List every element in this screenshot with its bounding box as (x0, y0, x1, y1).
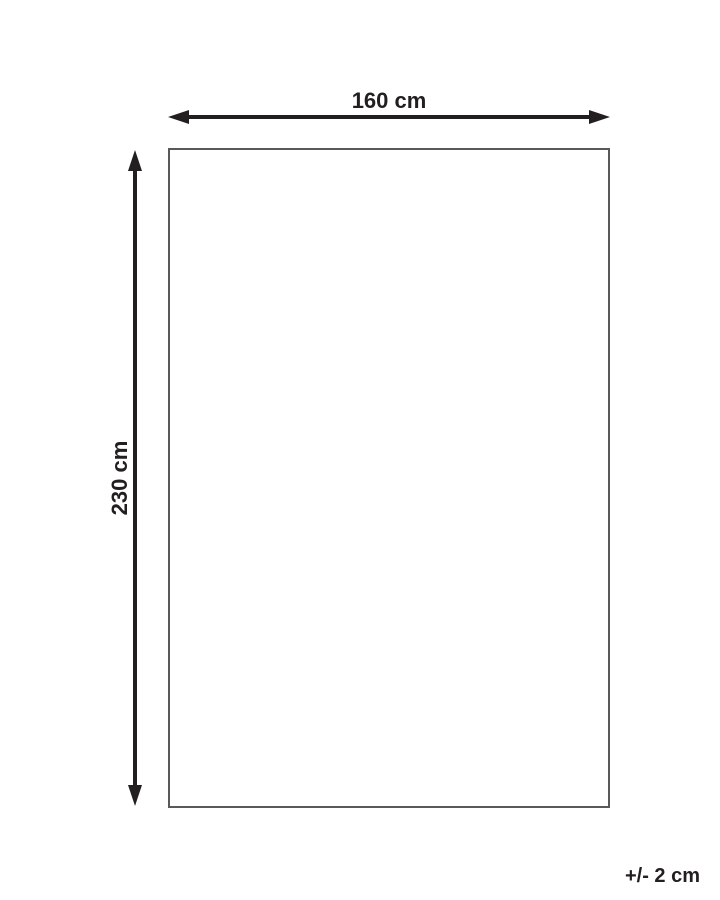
arrow-up-head-icon (128, 150, 142, 171)
arrow-right-head-icon (589, 110, 610, 124)
width-dimension-arrow (168, 109, 610, 125)
arrow-left-head-icon (168, 110, 189, 124)
arrow-down-head-icon (128, 785, 142, 806)
product-outline-rectangle (168, 148, 610, 808)
tolerance-label: +/- 2 cm (625, 866, 700, 886)
height-dimension-arrow (127, 150, 143, 806)
dimension-diagram: 160 cm 230 cm +/- 2 cm (0, 0, 720, 900)
